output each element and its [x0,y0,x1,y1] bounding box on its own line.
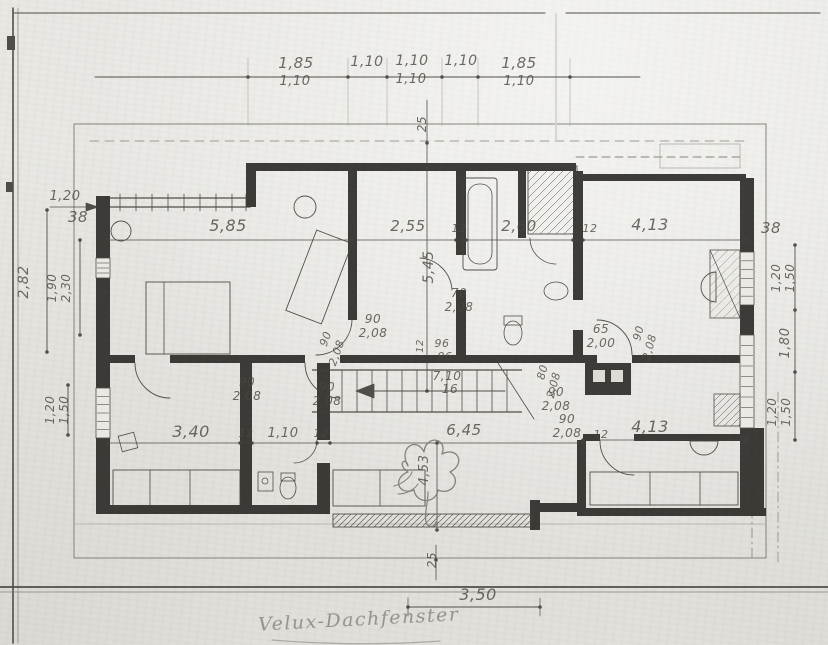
dim-label: 1,10 [504,74,535,89]
dim-label: 5,85 [209,216,247,235]
dim-label: 1,50 [783,264,797,293]
dim-label: 25 [425,552,439,568]
eaves-outline [74,124,778,562]
dim-label: 2,08 [553,426,582,440]
dimension-labels: 1,851,101,101,101,101,101,851,10251,2038… [16,53,797,604]
dim-label: 1,10 [395,53,428,69]
dim-label: 2,08 [359,326,388,340]
dim-label: 2,30 [59,274,73,303]
dim-label: 2,82 [16,265,32,298]
dim-label: 2,08 [445,300,474,314]
dim-label: 3,40 [172,422,210,441]
dim-label: 4,13 [631,215,669,234]
dim-label: 96 [438,350,453,363]
dim-label: 4,13 [631,417,669,436]
dim-label: 2,08 [313,394,342,408]
dim-label: 1,90 [45,274,59,303]
dim-label: 1,10 [444,53,477,69]
dim-label: 90 [548,385,564,399]
dim-label: 1,10 [350,54,383,70]
dimension-lines [45,58,797,616]
dim-label: 12 [452,222,467,235]
dim-label: 2,08 [542,399,571,413]
dim-label: 1,85 [501,54,536,72]
dim-label: 7,10 [433,369,462,383]
dim-label: 2,08 [233,389,262,403]
dim-label: 1,80 [778,328,793,359]
dim-label: 1,20 [769,264,783,293]
dim-label: 38 [761,219,781,237]
dim-label: 65 [593,322,609,336]
stairs [312,363,534,419]
dim-label: 4,53 [417,455,432,486]
dim-label: 2,55 [390,217,425,235]
floor-plan-drawing: 1,851,101,101,101,101,101,851,10251,2038… [0,0,828,645]
dim-label: 5,45 [421,250,437,283]
dim-label: 90 [365,312,381,326]
dim-label: 16 [442,382,458,396]
dim-label: 90 [319,380,335,394]
dim-label: 1,85 [278,54,313,72]
dim-label: 12 [583,222,598,235]
dim-label: 90 [239,375,255,389]
dim-label: 12 [415,339,426,353]
dim-label: 90 [559,412,575,426]
dim-label: 2,60 [501,217,536,235]
dim-label: 96 [435,337,450,350]
dim-label: 6,45 [446,421,481,439]
paper-frame [0,8,828,643]
dim-label: 2,00 [587,336,616,350]
dim-label: 1,10 [396,72,427,87]
dim-label: 1,50 [779,398,793,427]
dim-label: 12 [239,427,254,440]
dim-label: 1,10 [268,426,299,441]
dim-label: 70 [451,286,467,300]
dim-label: 1,50 [57,396,71,425]
dim-label: 1,20 [43,396,57,425]
dim-label: 3,50 [459,585,497,604]
dim-label: 38 [68,208,88,226]
dim-label: 12 [314,427,329,440]
dim-label: 12 [594,428,609,441]
dim-label: 1,20 [50,189,81,204]
floor-plan-sheet: 1,851,101,101,101,101,101,851,10251,2038… [0,0,828,645]
dim-label: 1,10 [280,74,311,89]
dim-label: 1,20 [765,398,779,427]
dim-label: 25 [415,116,429,132]
